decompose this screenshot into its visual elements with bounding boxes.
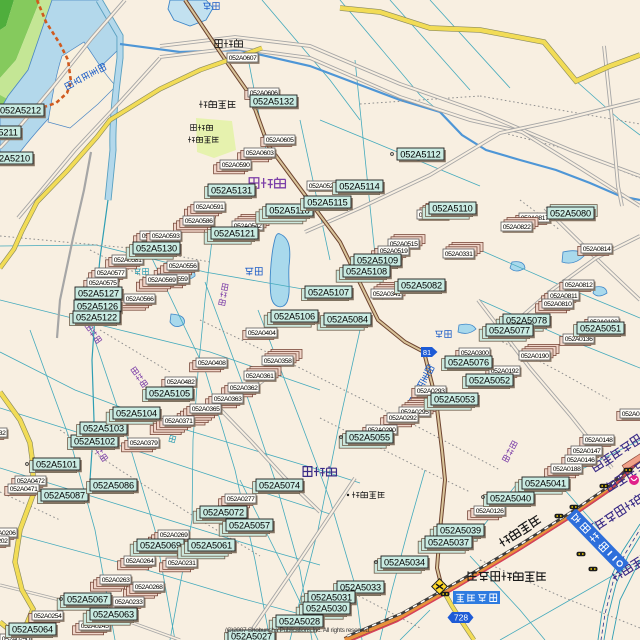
svg-text:052A5051: 052A5051 bbox=[580, 324, 621, 334]
svg-text:052A0202: 052A0202 bbox=[0, 538, 8, 545]
svg-text:052A5108: 052A5108 bbox=[346, 267, 387, 277]
svg-text:052A5086: 052A5086 bbox=[93, 481, 134, 491]
svg-text:052A5031: 052A5031 bbox=[311, 593, 352, 603]
svg-text:052A5030: 052A5030 bbox=[306, 604, 347, 614]
svg-text:052A5105: 052A5105 bbox=[149, 389, 190, 399]
svg-text:052A0147: 052A0147 bbox=[622, 411, 640, 418]
svg-text:052A5112: 052A5112 bbox=[400, 150, 440, 160]
svg-text:052A0263: 052A0263 bbox=[102, 577, 130, 584]
svg-text:052A0264: 052A0264 bbox=[126, 558, 154, 565]
svg-text:052A0607: 052A0607 bbox=[229, 55, 257, 62]
svg-text:052A0358: 052A0358 bbox=[264, 358, 292, 365]
svg-text:052A0577: 052A0577 bbox=[97, 270, 125, 277]
svg-text:052A5110: 052A5110 bbox=[432, 204, 472, 214]
svg-text:052A0361: 052A0361 bbox=[246, 373, 274, 380]
svg-text:052A5130: 052A5130 bbox=[136, 244, 177, 254]
svg-text:052A0575: 052A0575 bbox=[89, 280, 117, 287]
svg-text:052A0363: 052A0363 bbox=[214, 396, 242, 403]
svg-text:052A0812: 052A0812 bbox=[565, 282, 593, 289]
svg-text:052A0586: 052A0586 bbox=[185, 218, 213, 225]
svg-text:052A5063: 052A5063 bbox=[93, 610, 134, 620]
svg-text:(C)2007 Shobunsha Publications: (C)2007 Shobunsha Publications,Inc. All … bbox=[225, 627, 371, 634]
svg-text:728: 728 bbox=[454, 612, 468, 622]
svg-text:052A5037: 052A5037 bbox=[428, 538, 469, 548]
svg-text:052A0148: 052A0148 bbox=[585, 437, 613, 444]
svg-text:052A0569: 052A0569 bbox=[148, 277, 176, 284]
svg-text:052A5080: 052A5080 bbox=[550, 209, 591, 219]
svg-text:052A5074: 052A5074 bbox=[259, 481, 300, 491]
svg-text:052A5039: 052A5039 bbox=[440, 526, 481, 536]
svg-text:052A5210: 052A5210 bbox=[0, 154, 30, 164]
svg-text:052A5072: 052A5072 bbox=[203, 508, 244, 518]
svg-text:052A0371: 052A0371 bbox=[165, 418, 193, 425]
svg-text:052A5126: 052A5126 bbox=[77, 302, 118, 312]
svg-text:052A5101: 052A5101 bbox=[36, 460, 77, 470]
svg-text:052A5122: 052A5122 bbox=[76, 313, 117, 323]
svg-text:052A5067: 052A5067 bbox=[67, 595, 108, 605]
svg-text:052A0432: 052A0432 bbox=[0, 430, 6, 437]
svg-text:052A0603: 052A0603 bbox=[246, 150, 274, 157]
svg-text:052A0147: 052A0147 bbox=[573, 448, 601, 455]
svg-text:052A0471: 052A0471 bbox=[10, 486, 38, 493]
svg-text:052A5106: 052A5106 bbox=[274, 312, 315, 322]
svg-text:052A0810: 052A0810 bbox=[544, 301, 572, 308]
svg-text:052A5061: 052A5061 bbox=[191, 541, 232, 551]
svg-text:052A5040: 052A5040 bbox=[490, 494, 531, 504]
svg-text:052A0146: 052A0146 bbox=[567, 457, 595, 464]
svg-text:052A5057: 052A5057 bbox=[229, 521, 270, 531]
svg-text:052A5132: 052A5132 bbox=[253, 97, 294, 107]
svg-text:052A0268: 052A0268 bbox=[135, 584, 163, 591]
svg-text:052A0233: 052A0233 bbox=[115, 599, 143, 606]
svg-text:052A0590: 052A0590 bbox=[222, 162, 250, 169]
svg-text:052A0822: 052A0822 bbox=[503, 224, 531, 231]
svg-text:052A5102: 052A5102 bbox=[74, 437, 115, 447]
svg-text:052A5082: 052A5082 bbox=[401, 281, 442, 291]
svg-text:052A0190: 052A0190 bbox=[521, 353, 549, 360]
svg-text:052A5069: 052A5069 bbox=[140, 541, 181, 551]
svg-text:052A0188: 052A0188 bbox=[553, 466, 581, 473]
svg-text:052A5055: 052A5055 bbox=[349, 433, 390, 443]
svg-text:052A0605: 052A0605 bbox=[266, 137, 294, 144]
svg-text:052A0362: 052A0362 bbox=[230, 385, 258, 392]
svg-text:052A5121: 052A5121 bbox=[214, 229, 255, 239]
svg-text:052A0566: 052A0566 bbox=[126, 296, 154, 303]
svg-text:052A5076: 052A5076 bbox=[448, 358, 489, 368]
svg-text:052A5052: 052A5052 bbox=[469, 376, 510, 386]
svg-text:052A5127: 052A5127 bbox=[78, 289, 119, 299]
svg-text:052A0277: 052A0277 bbox=[227, 496, 255, 503]
svg-text:052A0408: 052A0408 bbox=[198, 360, 226, 367]
svg-text:052A5103: 052A5103 bbox=[83, 424, 124, 434]
svg-text:81: 81 bbox=[423, 348, 431, 357]
svg-text:052A5114: 052A5114 bbox=[339, 182, 379, 192]
svg-text:052A0556: 052A0556 bbox=[169, 263, 197, 270]
svg-text:052A5084: 052A5084 bbox=[327, 315, 368, 325]
svg-text:052A0269: 052A0269 bbox=[160, 532, 188, 539]
svg-text:052A5211: 052A5211 bbox=[0, 128, 18, 138]
svg-text:052A0379: 052A0379 bbox=[130, 440, 158, 447]
svg-text:052A0254: 052A0254 bbox=[34, 613, 62, 620]
svg-text:052A5109: 052A5109 bbox=[357, 256, 398, 266]
svg-text:052A0814: 052A0814 bbox=[583, 246, 611, 253]
svg-text:052A0365: 052A0365 bbox=[192, 406, 220, 413]
svg-text:052A5107: 052A5107 bbox=[308, 288, 349, 298]
svg-text:052A0126: 052A0126 bbox=[476, 508, 504, 515]
svg-text:052A0404: 052A0404 bbox=[248, 330, 276, 337]
svg-text:052A5028: 052A5028 bbox=[279, 617, 320, 627]
svg-text:052A5131: 052A5131 bbox=[211, 186, 252, 196]
svg-text:052A0482: 052A0482 bbox=[167, 379, 195, 386]
svg-text:052A0591: 052A0591 bbox=[196, 204, 224, 211]
svg-text:052A0231: 052A0231 bbox=[168, 560, 196, 567]
svg-text:052A5212: 052A5212 bbox=[0, 106, 41, 116]
svg-text:052A0593: 052A0593 bbox=[152, 233, 180, 240]
svg-text:052A5104: 052A5104 bbox=[116, 409, 157, 419]
svg-text:052A5064: 052A5064 bbox=[12, 625, 53, 635]
svg-text:052A5115: 052A5115 bbox=[307, 198, 347, 208]
svg-text:052A5053: 052A5053 bbox=[434, 395, 475, 405]
svg-text:052A0331: 052A0331 bbox=[445, 251, 473, 258]
svg-text:052A5087: 052A5087 bbox=[44, 491, 85, 501]
svg-text:052A5077: 052A5077 bbox=[489, 326, 530, 336]
svg-text:052A0136: 052A0136 bbox=[565, 336, 593, 343]
svg-text:052A5034: 052A5034 bbox=[384, 558, 425, 568]
svg-text:052A5041: 052A5041 bbox=[525, 479, 566, 489]
svg-text:052A0292: 052A0292 bbox=[389, 415, 417, 422]
